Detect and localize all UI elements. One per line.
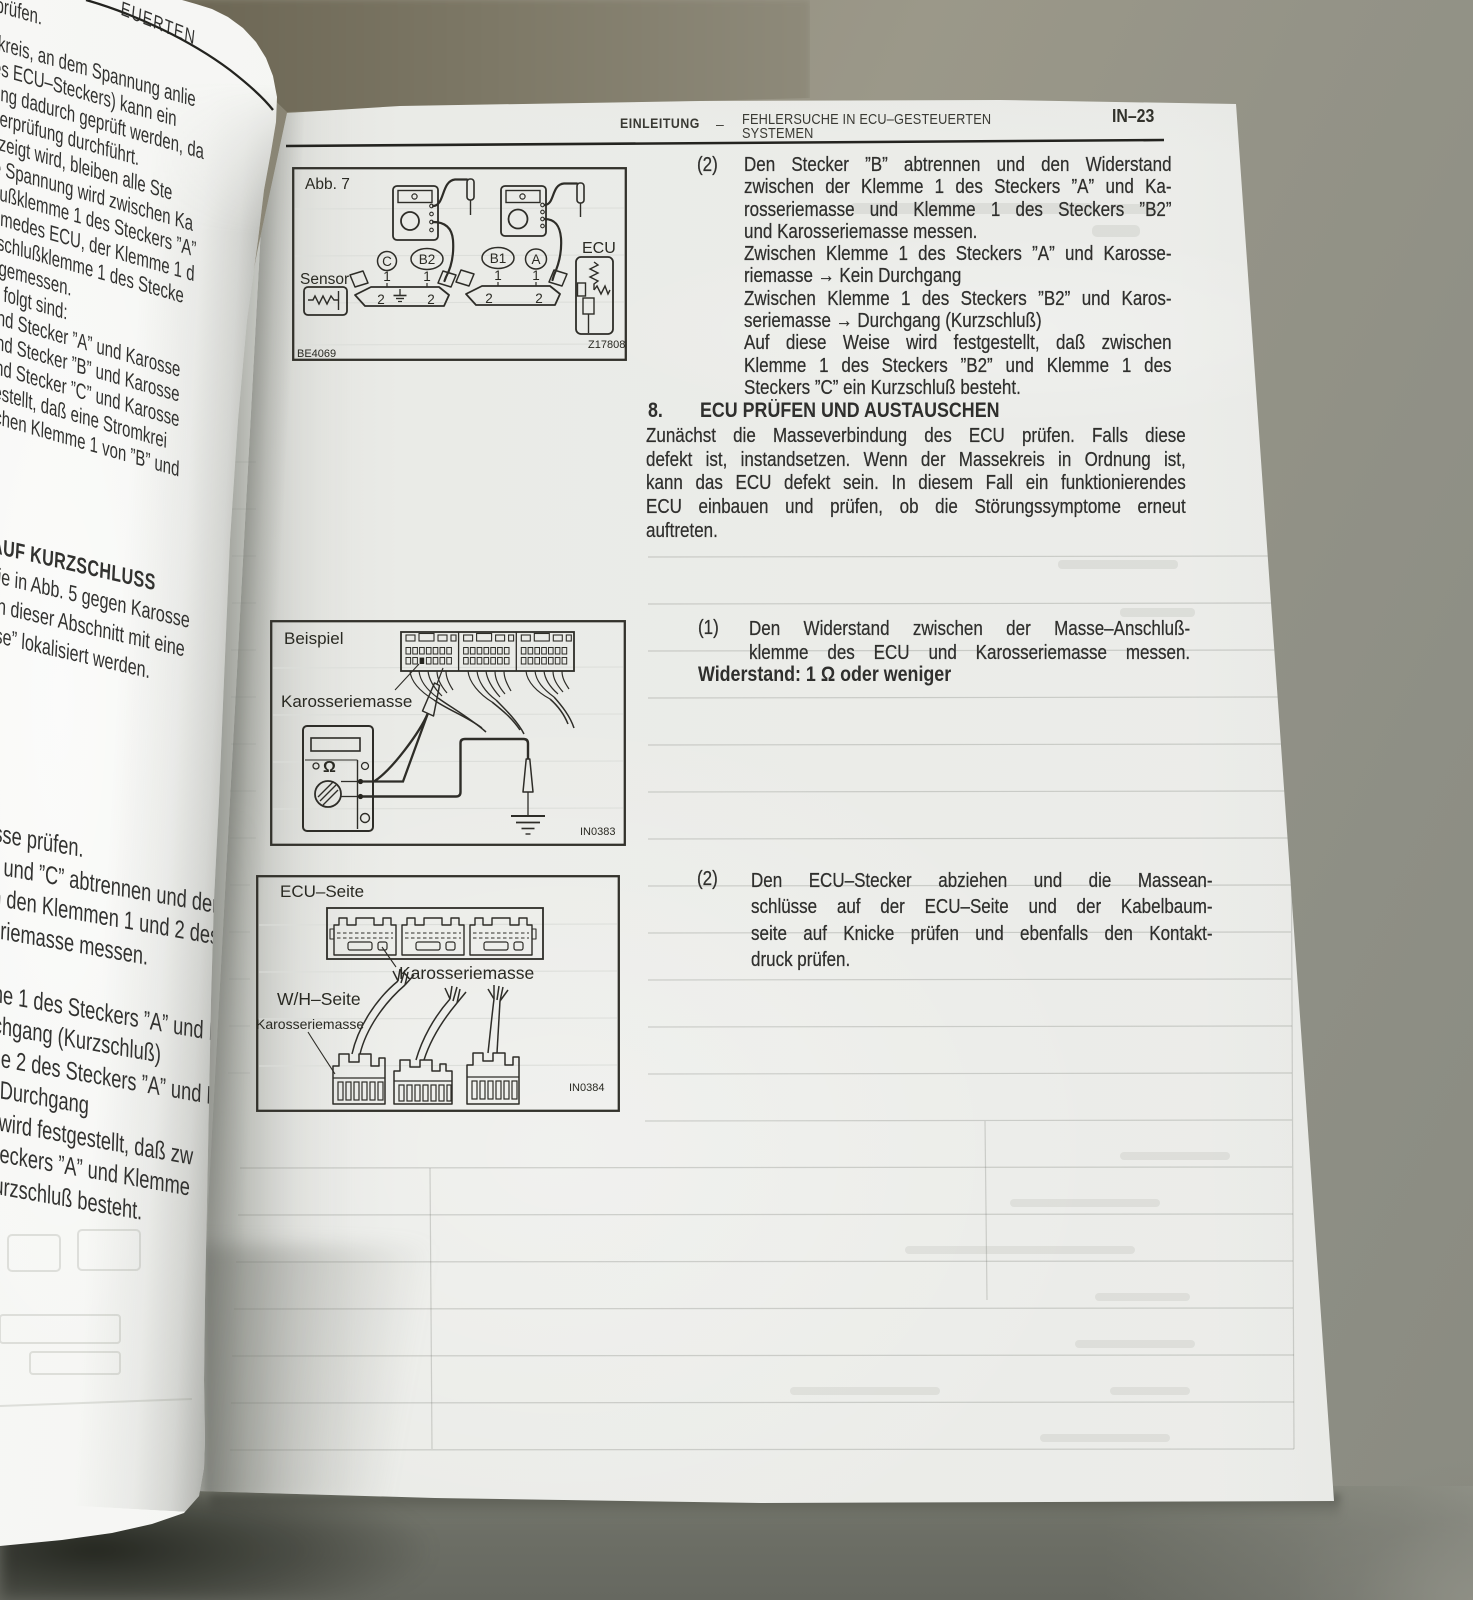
svg-text:C: C — [382, 254, 392, 269]
svg-text:1: 1 — [532, 268, 540, 283]
svg-text:ECU: ECU — [582, 240, 616, 257]
svg-text:Z17808: Z17808 — [588, 339, 625, 351]
svg-text:Sensor: Sensor — [300, 271, 349, 288]
svg-text:1: 1 — [494, 268, 502, 283]
svg-text:2: 2 — [485, 291, 493, 306]
svg-text:Karosseriemasse: Karosseriemasse — [399, 963, 534, 983]
svg-text:IN0384: IN0384 — [569, 1082, 604, 1094]
svg-text:2: 2 — [427, 292, 435, 307]
svg-text:B2: B2 — [419, 252, 436, 267]
svg-text:Karosseriemasse: Karosseriemasse — [281, 692, 412, 711]
svg-text:Beispiel: Beispiel — [284, 629, 344, 648]
svg-text:W/H–Seite: W/H–Seite — [277, 989, 361, 1009]
svg-text:2: 2 — [535, 291, 543, 306]
svg-text:IN0383: IN0383 — [580, 826, 615, 838]
svg-text:B1: B1 — [490, 251, 507, 266]
svg-text:Abb. 7: Abb. 7 — [305, 176, 350, 193]
svg-text:BE4069: BE4069 — [297, 348, 336, 360]
svg-text:1: 1 — [423, 269, 431, 284]
svg-text:ECU–Seite: ECU–Seite — [280, 882, 364, 901]
svg-text:A: A — [531, 252, 540, 267]
svg-text:Karosseriemasse: Karosseriemasse — [256, 1016, 364, 1032]
svg-text:1: 1 — [383, 269, 391, 284]
svg-text:2: 2 — [377, 292, 385, 307]
svg-text:Ω: Ω — [323, 759, 336, 776]
